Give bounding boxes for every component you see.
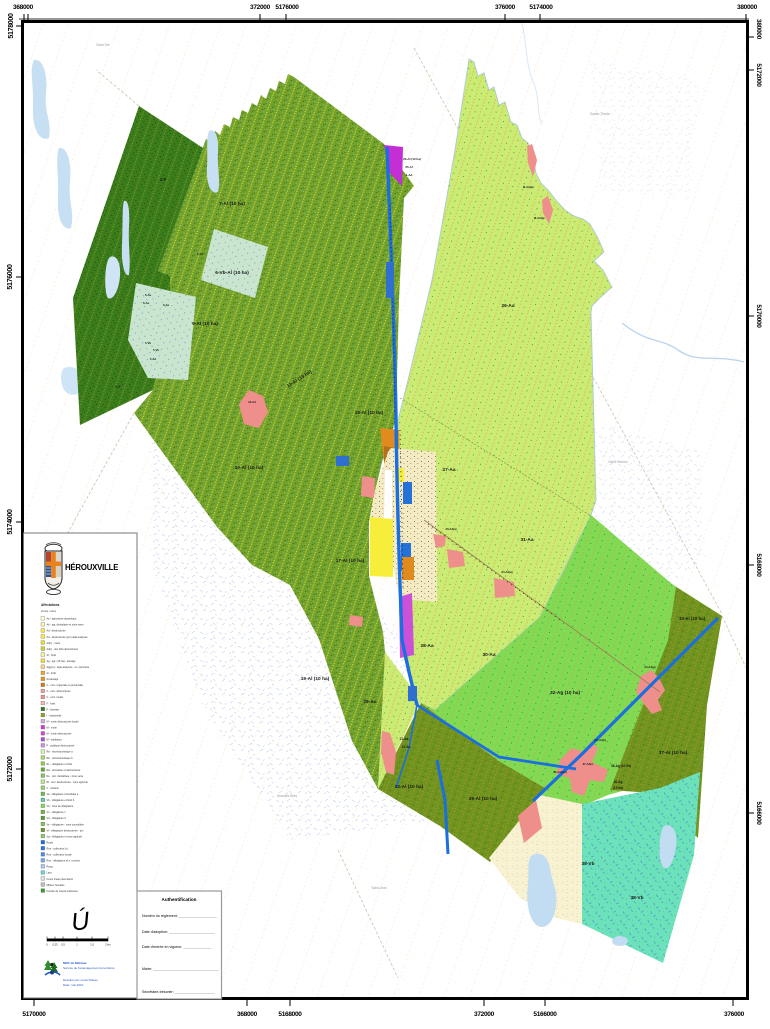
svg-text:MRC de Mékinac: MRC de Mékinac xyxy=(63,961,87,965)
svg-text:31-Aa: 31-Aa xyxy=(520,537,533,543)
svg-text:29-Al (10 ha): 29-Al (10 ha) xyxy=(469,796,498,802)
svg-text:376000: 376000 xyxy=(495,4,516,11)
svg-text:M - habitation: M - habitation xyxy=(47,739,63,742)
svg-text:38-Vb: 38-Vb xyxy=(581,861,594,867)
svg-text:Lacs: Lacs xyxy=(47,872,53,875)
svg-text:Rf - récr. déstructurée - zone: Rf - récr. déstructurée - zone agricole xyxy=(47,781,89,784)
svg-text:(10 ha): (10 ha) xyxy=(613,786,623,790)
svg-text:Al-élevage: Al-élevage xyxy=(47,678,59,681)
svg-text:16-Ad: 16-Ad xyxy=(248,400,256,404)
svg-text:Rb - récréotouristique b: Rb - récréotouristique b xyxy=(47,757,74,760)
svg-text:Dessiné par: Louis Filteau: Dessiné par: Louis Filteau xyxy=(63,978,98,982)
svg-text:5-Vb: 5-Vb xyxy=(145,341,151,345)
svg-text:Rang: Rang xyxy=(47,866,54,869)
svg-text:Saint-Séverin: Saint-Séverin xyxy=(608,460,627,464)
svg-text:6-Vb-Al (10 ha): 6-Vb-Al (10 ha) xyxy=(215,270,249,276)
svg-text:5176000: 5176000 xyxy=(275,4,299,11)
svg-text:Date d'entrée en vigueur: ____: Date d'entrée en vigueur: ______________ xyxy=(142,945,212,949)
svg-text:Ad - déstructurée: Ad - déstructurée xyxy=(47,630,67,633)
svg-text:5-Ad: 5-Ad xyxy=(197,252,204,256)
svg-text:I - industrielle: I - industrielle xyxy=(47,714,62,717)
svg-text:33-Al (10 ha): 33-Al (10 ha) xyxy=(679,616,706,621)
svg-text:5-Ad: 5-Ad xyxy=(150,357,157,361)
svg-text:C - com. déstructurée: C - com. déstructurée xyxy=(47,690,72,693)
svg-text:34-Ad(pm): 34-Ad(pm) xyxy=(553,770,567,774)
svg-text:5-Vb: 5-Vb xyxy=(153,348,159,352)
svg-text:HÉROUXVILLE: HÉROUXVILLE xyxy=(65,563,118,572)
svg-text:6-Aa: 6-Aa xyxy=(163,303,170,307)
svg-text:Rue - collectrice locale: Rue - collectrice locale xyxy=(47,854,73,857)
svg-text:36-Ag (10 ha): 36-Ag (10 ha) xyxy=(611,764,631,768)
svg-text:30-Aa: 30-Aa xyxy=(482,652,495,658)
svg-text:F - forestier: F - forestier xyxy=(47,708,60,711)
svg-text:Date: mai 2010: Date: mai 2010 xyxy=(63,983,84,987)
svg-text:Vf - villégiature déstructurée: Vf - villégiature déstructurée - pm xyxy=(47,829,84,832)
svg-text:38-Vb: 38-Vb xyxy=(630,895,643,901)
svg-text:1,5: 1,5 xyxy=(90,943,94,947)
svg-text:21-Aa: 21-Aa xyxy=(402,745,411,749)
svg-text:Secrétaire-trésorier: ________: Secrétaire-trésorier: __________________… xyxy=(142,990,216,994)
svg-text:Vg - villégiature et zone agri: Vg - villégiature et zone agricole xyxy=(47,835,83,838)
svg-text:Aa - agriculture dynamique: Aa - agriculture dynamique xyxy=(47,618,77,621)
svg-text:28-Aa: 28-Aa xyxy=(363,699,376,705)
svg-text:15-Al (10 ha): 15-Al (10 ha) xyxy=(355,410,384,416)
svg-text:5174000: 5174000 xyxy=(529,4,553,11)
svg-text:Numéro du règlement: _________: Numéro du règlement: ___________________ xyxy=(142,914,218,918)
svg-text:19-Al (10 ha): 19-Al (10 ha) xyxy=(301,676,330,682)
svg-text:Affectations: Affectations xyxy=(41,603,60,607)
svg-text:2 km: 2 km xyxy=(105,943,111,947)
svg-text:C - com. régionale ou provinci: C - com. régionale ou provinciale xyxy=(47,684,84,687)
svg-text:Saint-Tite: Saint-Tite xyxy=(96,43,110,47)
svg-text:(8-Ad(a): (8-Ad(a) xyxy=(534,216,545,220)
svg-text:372000: 372000 xyxy=(250,4,271,11)
svg-text:Grandes-Piles: Grandes-Piles xyxy=(277,794,298,798)
svg-text:5168000: 5168000 xyxy=(755,553,762,577)
svg-text:5170000: 5170000 xyxy=(22,1011,46,1018)
svg-text:368000: 368000 xyxy=(13,4,34,11)
svg-text:Courbe de niveau maîtresse: Courbe de niveau maîtresse xyxy=(47,890,79,893)
svg-text:21-Aa: 21-Aa xyxy=(400,737,409,741)
svg-text:5172000: 5172000 xyxy=(755,63,762,87)
svg-text:5168000: 5168000 xyxy=(278,1011,302,1018)
svg-text:36-Ag: 36-Ag xyxy=(614,780,623,784)
svg-text:Vc - villégiature c: Vc - villégiature c xyxy=(47,811,67,814)
svg-text:Al - forêt: Al - forêt xyxy=(47,672,57,675)
svg-text:5176000: 5176000 xyxy=(7,264,14,290)
svg-text:0,25: 0,25 xyxy=(52,943,58,947)
svg-text:368000: 368000 xyxy=(237,1011,258,1018)
svg-text:17-Al (10 ha): 17-Al (10 ha) xyxy=(336,558,365,564)
svg-text:M - mixte: M - mixte xyxy=(47,727,58,730)
svg-text:Vd - villégiature d: Vd - villégiature d xyxy=(47,817,67,820)
svg-text:372000: 372000 xyxy=(474,1011,495,1018)
svg-text:V - urbaine: V - urbaine xyxy=(47,787,60,790)
svg-text:2-F: 2-F xyxy=(160,177,167,182)
svg-text:Rue - villégiature et n. numér: Rue - villégiature et n. numéro xyxy=(47,860,81,863)
svg-text:Ag(pm) - déjà analysée - ex. p: Ag(pm) - déjà analysée - ex. périmètre xyxy=(47,666,90,669)
svg-text:4-Ad: 4-Ad xyxy=(406,173,413,177)
svg-text:Route: Route xyxy=(47,842,54,845)
svg-text:F - forêt: F - forêt xyxy=(47,702,56,705)
svg-text:Ad - déstructurée (pm) déjà an: Ad - déstructurée (pm) déjà analysée xyxy=(47,636,89,639)
svg-text:6-Aa: 6-Aa xyxy=(145,293,152,297)
svg-text:20-Al (10 ha): 20-Al (10 ha) xyxy=(403,157,421,161)
svg-text:5174000: 5174000 xyxy=(7,509,14,535)
svg-text:Rc - villégiature et forêt: Rc - villégiature et forêt xyxy=(47,763,73,766)
svg-text:26-Aa: 26-Aa xyxy=(501,303,514,309)
svg-text:5166000: 5166000 xyxy=(533,1011,557,1018)
svg-text:Ab - agr. dévitalisée et zone: Ab - agr. dévitalisée et zone verte xyxy=(47,624,85,627)
svg-text:Saint-Jean: Saint-Jean xyxy=(371,886,386,890)
svg-text:2-F: 2-F xyxy=(115,385,121,389)
svg-text:Ra - récréotouristique a: Ra - récréotouristique a xyxy=(47,751,74,754)
svg-text:5178000: 5178000 xyxy=(8,13,15,39)
svg-text:380000: 380000 xyxy=(737,4,758,11)
svg-text:37-Ad(r): 37-Ad(r) xyxy=(583,762,594,766)
svg-text:Vb - villégiature et forêt b: Vb - villégiature et forêt b xyxy=(47,799,75,802)
svg-text:P - publique déstructurée: P - publique déstructurée xyxy=(47,745,75,748)
svg-text:5170000: 5170000 xyxy=(755,304,762,328)
svg-text:9-Al (10 ha): 9-Al (10 ha) xyxy=(192,321,218,327)
svg-text:10-Al (10 ha): 10-Al (10 ha) xyxy=(235,465,264,471)
svg-text:Ve - villégiature - zone conso: Ve - villégiature - zone consolidée xyxy=(47,823,85,826)
svg-text:27-Aa: 27-Aa xyxy=(442,467,455,473)
svg-text:Ad(r) - des îlots déstructurés: Ad(r) - des îlots déstructurés xyxy=(47,648,79,651)
svg-text:37-Al (10 ha): 37-Al (10 ha) xyxy=(659,750,688,756)
svg-text:Rd - récréative et déstructuré: Rd - récréative et déstructurée xyxy=(47,769,81,772)
svg-text:22-Al (10 ha): 22-Al (10 ha) xyxy=(395,784,424,790)
svg-text:Ag - agr. (10 ha) - élevage: Ag - agr. (10 ha) - élevage xyxy=(47,660,77,663)
svg-text:7-Al (10 ha): 7-Al (10 ha) xyxy=(219,201,245,207)
svg-text:Sainte-Thècle: Sainte-Thècle xyxy=(590,112,610,116)
svg-text:Rue - collectrice (r): Rue - collectrice (r) xyxy=(47,848,68,851)
svg-text:Zones / aires: Zones / aires xyxy=(41,609,57,613)
svg-text:Service de l'aménagement du te: Service de l'aménagement du territoire xyxy=(63,966,115,970)
svg-text:34-Ad(a): 34-Ad(a) xyxy=(445,527,456,531)
svg-text:C - com. locale: C - com. locale xyxy=(47,696,64,699)
svg-text:M - mixte déstructurée locale: M - mixte déstructurée locale xyxy=(47,721,80,724)
svg-text:6-Aa: 6-Aa xyxy=(143,301,150,305)
svg-text:Ad(r) - mixte: Ad(r) - mixte xyxy=(47,642,61,645)
svg-text:28-Aa: 28-Aa xyxy=(420,643,433,649)
svg-text:5166000: 5166000 xyxy=(755,801,762,825)
svg-text:(37-Ad(r): (37-Ad(r) xyxy=(594,738,606,742)
svg-text:380000: 380000 xyxy=(755,19,762,40)
svg-text:5172000: 5172000 xyxy=(7,756,14,782)
svg-text:32-Ag (10 ha): 32-Ag (10 ha) xyxy=(550,690,581,696)
svg-text:(8-Ad(a): (8-Ad(a) xyxy=(523,185,534,189)
svg-text:34-Ad(a): 34-Ad(a) xyxy=(501,570,512,574)
svg-text:M - mixte déstructurée: M - mixte déstructurée xyxy=(47,733,72,736)
svg-text:Va - villégiature consolidée a: Va - villégiature consolidée a xyxy=(47,793,79,796)
svg-text:Vb - zone de villégiature: Vb - zone de villégiature xyxy=(47,805,74,808)
svg-text:376000: 376000 xyxy=(724,1011,745,1018)
svg-text:Cours d'eau intermittent: Cours d'eau intermittent xyxy=(47,878,74,881)
svg-text:Re - récr. dévitalisée - zone: Re - récr. dévitalisée - zone verte xyxy=(47,775,84,778)
svg-text:Authentification: Authentification xyxy=(162,897,197,902)
svg-text:25-Al: 25-Al xyxy=(405,165,413,169)
svg-text:Milieux humides: Milieux humides xyxy=(47,884,66,887)
svg-text:0,5: 0,5 xyxy=(61,943,65,947)
svg-text:Maire: _______________________: Maire: _________________________________ xyxy=(142,967,220,971)
svg-text:34-Ad(a): 34-Ad(a) xyxy=(644,665,655,669)
svg-text:Date d'adoption: _____________: Date d'adoption: _______________________ xyxy=(142,930,216,934)
svg-text:Af - forêt: Af - forêt xyxy=(47,654,57,657)
